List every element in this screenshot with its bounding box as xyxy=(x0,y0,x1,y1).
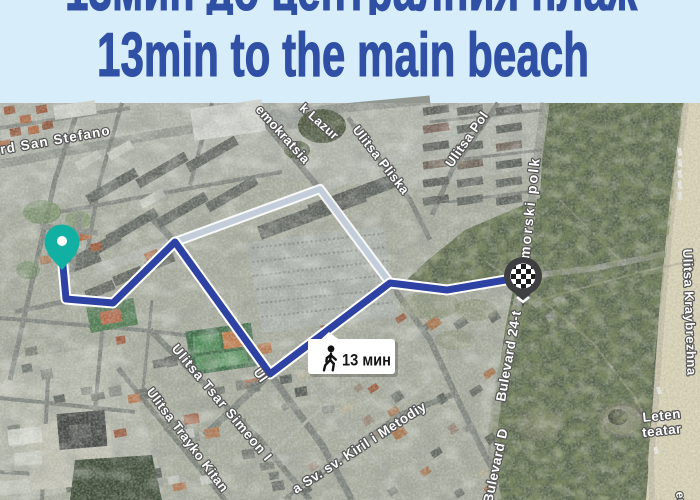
svg-text:eu: eu xyxy=(673,491,688,500)
svg-text:Letenteatar: Letenteatar xyxy=(640,406,683,440)
svg-text:13min to the main beach: 13min to the main beach xyxy=(97,21,589,90)
svg-text:13 мин: 13 мин xyxy=(342,351,391,370)
